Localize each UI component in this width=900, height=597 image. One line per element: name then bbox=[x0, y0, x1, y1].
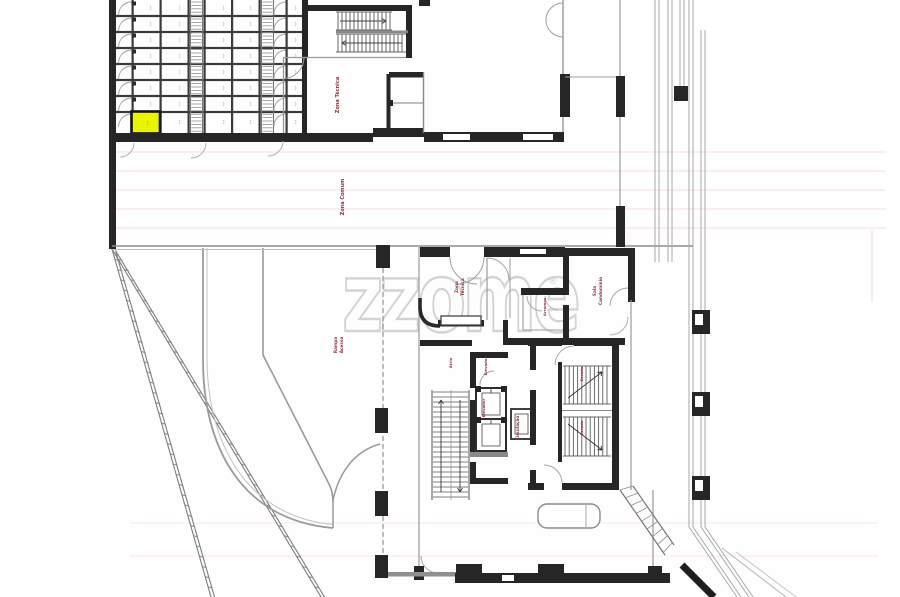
storage-unit-mark: ··· bbox=[294, 86, 298, 90]
storage-unit-mark: ··· bbox=[178, 70, 182, 74]
storage-unit-mark: ··· bbox=[178, 38, 182, 42]
storage-unit-mark: ··· bbox=[222, 38, 226, 42]
storage-unit-mark: ··· bbox=[178, 6, 182, 10]
watermark-registered-icon: ® bbox=[548, 276, 558, 287]
storage-unit-mark: ··· bbox=[249, 6, 253, 10]
label-lower-tech-2: Técnica bbox=[460, 278, 465, 296]
storage-unit-mark: ··· bbox=[294, 6, 298, 10]
storage-unit-mark: ··· bbox=[149, 6, 153, 10]
floor-plan-scan: zzome ® ································… bbox=[0, 0, 900, 597]
site-boundary-and-ramps bbox=[112, 248, 380, 597]
upper-building: ········································… bbox=[109, 0, 693, 250]
storage-unit-mark: ··· bbox=[249, 70, 253, 74]
label-ramp-2: Acesso bbox=[339, 337, 344, 354]
storage-unit-mark: ··· bbox=[149, 38, 153, 42]
label-lower-tech-1: Zona bbox=[454, 281, 459, 293]
label-circulation: Circulação bbox=[515, 416, 520, 441]
label-ramp-1: Rampa bbox=[333, 337, 338, 353]
label-atrium: Átrio bbox=[448, 357, 453, 368]
storage-unit-mark: ··· bbox=[249, 54, 253, 58]
storage-unit-mark: ··· bbox=[149, 86, 153, 90]
storage-unit-mark: ··· bbox=[178, 22, 182, 26]
storage-unit-mark: ··· bbox=[222, 54, 226, 58]
storage-unit-mark: ··· bbox=[294, 38, 298, 42]
label-small-storage: Arrumos bbox=[542, 297, 547, 316]
storage-unit-mark: ··· bbox=[178, 120, 182, 124]
storage-unit-mark: ··· bbox=[178, 102, 182, 106]
storage-unit-mark: ··· bbox=[294, 120, 298, 124]
right-colonnade bbox=[598, 0, 796, 597]
storage-unit-mark: ··· bbox=[249, 86, 253, 90]
storage-unit-mark: ··· bbox=[222, 6, 226, 10]
storage-unit-mark: ··· bbox=[249, 38, 253, 42]
storage-unit-mark: ··· bbox=[249, 102, 253, 106]
label-stairs-upper: Escada bbox=[579, 366, 584, 381]
storage-unit-mark: ··· bbox=[294, 102, 298, 106]
floor-plan-drawing: zzome ® ································… bbox=[0, 0, 900, 597]
storage-unit-mark: ··· bbox=[178, 86, 182, 90]
label-elevator-side: Elevador bbox=[481, 399, 486, 418]
label-tech-room-upper: Zona Técnica bbox=[334, 77, 341, 113]
storage-unit-mark: ··· bbox=[178, 54, 182, 58]
label-common-zone: Zona Comum bbox=[340, 179, 346, 216]
highlighted-unit-mark: ··· bbox=[146, 121, 150, 125]
storage-unit-mark: ··· bbox=[149, 102, 153, 106]
storage-unit-mark: ··· bbox=[149, 70, 153, 74]
storage-unit-mark: ··· bbox=[222, 102, 226, 106]
storage-unit-mark: ··· bbox=[222, 120, 226, 124]
storage-unit-mark: ··· bbox=[222, 22, 226, 26]
storage-unit-mark: ··· bbox=[222, 86, 226, 90]
storage-unit-mark: ··· bbox=[149, 22, 153, 26]
label-stairs-lower: Escada bbox=[579, 420, 584, 435]
label-condo-room-1: Sala bbox=[592, 286, 597, 296]
label-condo-room-2: Condomínio bbox=[598, 277, 603, 305]
storage-unit-mark: ··· bbox=[249, 120, 253, 124]
storage-unit-mark: ··· bbox=[222, 70, 226, 74]
storage-unit-mark: ··· bbox=[294, 22, 298, 26]
label-elevator-top: Elevador bbox=[483, 357, 488, 376]
storage-unit-mark: ··· bbox=[249, 22, 253, 26]
storage-unit-mark: ··· bbox=[149, 54, 153, 58]
